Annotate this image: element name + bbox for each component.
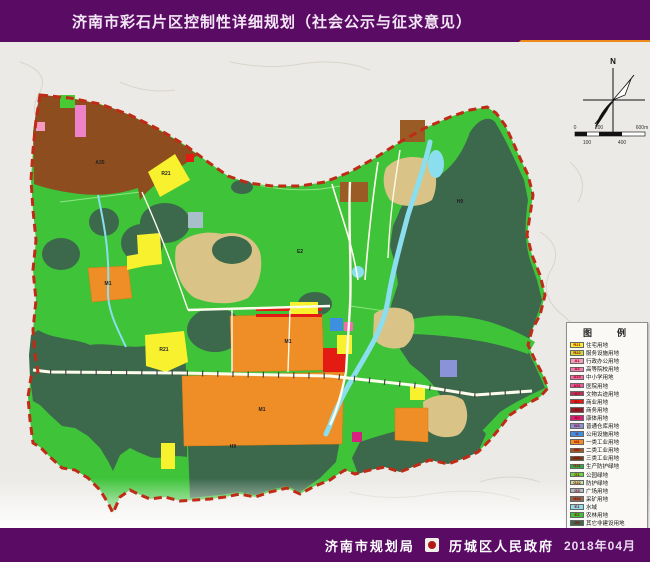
- legend-item: R22服务设施用地: [570, 349, 647, 357]
- legend-label: 生产防护绿地: [586, 462, 619, 470]
- legend-label: 普通仓库用地: [586, 422, 619, 430]
- legend-label: 文物古迹用地: [586, 390, 619, 398]
- legend-box: 图 例 R21住宅用地R22服务设施用地A1行政办公用地A3高等院校用地A33中…: [566, 322, 648, 536]
- color-swatch: W1: [570, 423, 584, 429]
- legend-item: A51医院用地: [570, 381, 647, 389]
- color-swatch: G1: [570, 472, 584, 478]
- legend-item: M3三类工业用地: [570, 454, 647, 462]
- legend-item: H54采矿用地: [570, 495, 647, 503]
- color-swatch: H9: [570, 520, 584, 526]
- color-swatch: A51: [570, 383, 584, 389]
- legend-label: 一类工业用地: [586, 438, 619, 446]
- color-swatch: B2: [570, 407, 584, 413]
- footer-date: 2018年04月: [564, 537, 636, 554]
- color-swatch: G21: [570, 464, 584, 470]
- page-title: 济南市彩石片区控制性详细规划（社会公示与征求意见）: [72, 11, 472, 32]
- legend-label: 防护绿地: [586, 479, 608, 487]
- svg-text:400: 400: [618, 140, 627, 146]
- color-swatch: R21: [570, 342, 584, 348]
- legend-label: 高等院校用地: [586, 365, 619, 373]
- commercial-strip-2: [256, 314, 322, 317]
- village-hill: [212, 236, 252, 264]
- sports-patch: [352, 432, 362, 442]
- government-seal-icon: [425, 538, 439, 552]
- legend-label: 服务设施用地: [586, 349, 619, 357]
- school-strip: [75, 105, 86, 137]
- color-swatch: E1: [570, 504, 584, 510]
- title-banner: 济南市彩石片区控制性详细规划（社会公示与征求意见）: [0, 0, 650, 42]
- legend-item: M1一类工业用地: [570, 438, 647, 446]
- color-swatch: M3: [570, 456, 584, 462]
- map-canvas: N 0 200 600m 100 400: [0, 42, 650, 528]
- footer-bar: 济南市规划局 历城区人民政府 2018年04月: [0, 528, 650, 562]
- legend-item: H9其它非建设用地: [570, 519, 647, 527]
- color-swatch: G3: [570, 488, 584, 494]
- commercial-dot: [186, 154, 194, 162]
- color-swatch: E2: [570, 512, 584, 518]
- color-swatch: M1: [570, 439, 584, 445]
- legend-label: 公园绿地: [586, 471, 608, 479]
- svg-text:0: 0: [574, 125, 577, 131]
- color-swatch: A1: [570, 358, 584, 364]
- color-swatch: B1: [570, 399, 584, 405]
- legend-item: A33中小学用地: [570, 373, 647, 381]
- legend-label: 商务用地: [586, 406, 608, 414]
- utility-patch: [330, 318, 343, 331]
- legend-item: R21住宅用地: [570, 341, 647, 349]
- legend-rows: R21住宅用地R22服务设施用地A1行政办公用地A3高等院校用地A33中小学用地…: [570, 341, 647, 535]
- color-swatch: A3: [570, 367, 584, 373]
- legend-label: 二类工业用地: [586, 446, 619, 454]
- legend-label: 水域: [586, 503, 597, 511]
- legend-label: 住宅用地: [586, 341, 608, 349]
- plaza-patch: [188, 212, 203, 228]
- legend-item: G22防护绿地: [570, 479, 647, 487]
- legend-item: A1行政办公用地: [570, 357, 647, 365]
- warehouse-patch: [440, 360, 457, 377]
- legend-item: E2农林用地: [570, 511, 647, 519]
- legend-item: G3广场用地: [570, 487, 647, 495]
- svg-text:600m: 600m: [636, 125, 649, 131]
- legend-label: 广场用地: [586, 487, 608, 495]
- color-swatch: B3: [570, 415, 584, 421]
- legend-item: B2商务用地: [570, 406, 647, 414]
- planning-map-page: 济南市彩石片区控制性详细规划（社会公示与征求意见） 用地规划图: [0, 0, 650, 562]
- legend-label: 农林用地: [586, 511, 608, 519]
- legend-label: 康体用地: [586, 414, 608, 422]
- legend-item: A7文物古迹用地: [570, 390, 647, 398]
- footer-agency-right: 历城区人民政府: [449, 536, 554, 555]
- legend-label: 三类工业用地: [586, 454, 619, 462]
- legend-label: 医院用地: [586, 382, 608, 390]
- legend-label: 商业用地: [586, 398, 608, 406]
- legend-item: B1商业用地: [570, 398, 647, 406]
- color-swatch: H54: [570, 496, 584, 502]
- legend-label: 采矿用地: [586, 495, 608, 503]
- color-swatch: A7: [570, 391, 584, 397]
- legend-label: 公用设施用地: [586, 430, 619, 438]
- legend-label: 其它非建设用地: [586, 519, 625, 527]
- svg-text:100: 100: [583, 140, 592, 146]
- footer-agency-left: 济南市规划局: [325, 536, 415, 555]
- color-swatch: R22: [570, 350, 584, 356]
- legend-item: B3康体用地: [570, 414, 647, 422]
- legend-item: M2二类工业用地: [570, 446, 647, 454]
- color-swatch: M2: [570, 448, 584, 454]
- brown-patch-1: [340, 182, 368, 202]
- legend-label: 行政办公用地: [586, 357, 619, 365]
- pink-patch: [36, 122, 45, 131]
- north-label: N: [610, 57, 616, 66]
- color-swatch: A33: [570, 375, 584, 381]
- legend-item: A3高等院校用地: [570, 365, 647, 373]
- landuse-map: N 0 200 600m 100 400 A35R21M1R21M1M1E2H9…: [0, 42, 650, 528]
- legend-item: U公用设施用地: [570, 430, 647, 438]
- legend-title: 图 例: [570, 326, 647, 339]
- color-swatch: U: [570, 431, 584, 437]
- legend-item: W1普通仓库用地: [570, 422, 647, 430]
- legend-item: E1水域: [570, 503, 647, 511]
- color-swatch: G22: [570, 480, 584, 486]
- legend-item: G1公园绿地: [570, 471, 647, 479]
- legend-item: G21生产防护绿地: [570, 462, 647, 470]
- svg-text:200: 200: [595, 125, 604, 131]
- legend-label: 中小学用地: [586, 373, 614, 381]
